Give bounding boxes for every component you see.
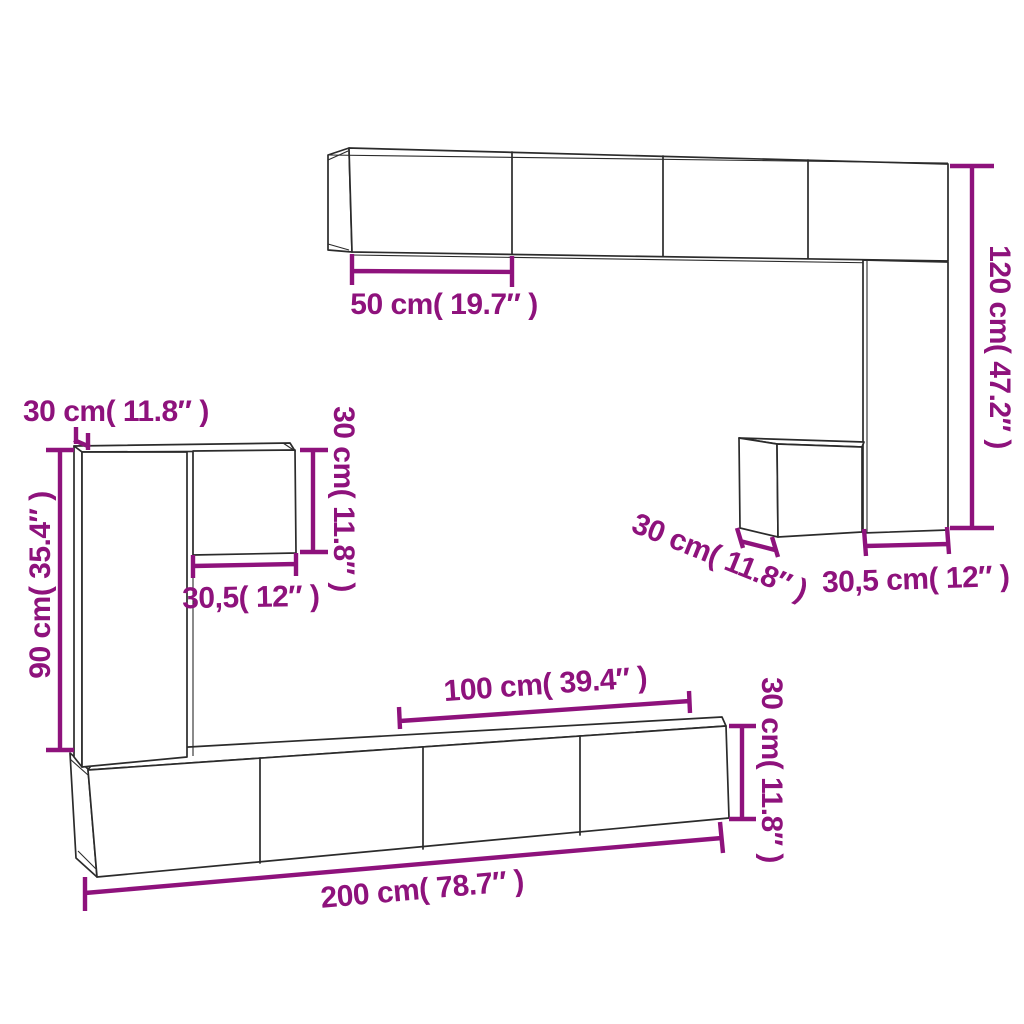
left-tall-cabinet-side-panel <box>74 446 82 767</box>
dim-left-square-width-label: 30,5( 12″ ) <box>182 580 320 615</box>
dim-right-column-height: 120 cm( 47.2″ ) <box>950 166 1016 528</box>
right-tall-cabinet-front-face <box>863 260 948 533</box>
dim-right-column-width-label: 30,5 cm( 12″ ) <box>821 560 1010 600</box>
dim-left-column-height: 90 cm( 35.4″ ) <box>24 450 74 750</box>
dim-left-square-width: 30,5( 12″ ) <box>182 553 320 615</box>
dim-bottom-cabinet-height: 30 cm( 11.8″ ) <box>729 677 788 863</box>
right-cube-cabinet <box>739 438 864 537</box>
dim-top-door-width-label: 50 cm( 19.7″ ) <box>350 288 537 321</box>
dim-right-column-height-label: 120 cm( 47.2″ ) <box>983 245 1016 449</box>
dim-top-door-width-lines <box>352 254 512 287</box>
right-cube-side-face <box>739 438 778 537</box>
dim-right-column-width: 30,5 cm( 12″ ) <box>821 527 1010 599</box>
dim-top-door-width: 50 cm( 19.7″ ) <box>350 254 537 321</box>
top-cabinet-left-end-panel <box>328 148 352 252</box>
top-cabinet-front-face <box>349 148 948 261</box>
dim-left-top-depth-label: 30 cm( 11.8″ ) <box>23 395 209 428</box>
dim-left-top-depth: 30 cm( 11.8″ ) <box>23 395 209 450</box>
left-tall-cabinet-front-face <box>82 452 187 767</box>
tv-wall-cabinet-dimension-diagram: 50 cm( 19.7″ ) 120 cm( 47.2″ ) 30 cm( 11… <box>0 0 1024 1024</box>
dim-bottom-cabinet-height-label: 30 cm( 11.8″ ) <box>755 677 788 863</box>
right-cube-front-face <box>777 444 862 537</box>
dim-bottom-section-width-label: 100 cm( 39.4″ ) <box>443 661 648 708</box>
dim-bottom-cabinet-height-lines <box>729 726 756 819</box>
left-square-cabinet-front-face <box>193 450 296 555</box>
top-wall-cabinet <box>328 148 948 264</box>
dim-bottom-section-width: 100 cm( 39.4″ ) <box>399 661 690 729</box>
dim-left-square-height: 30 cm( 11.8″ ) <box>300 406 360 592</box>
dim-left-square-height-lines <box>300 450 328 552</box>
right-tall-cabinet <box>863 260 948 533</box>
dim-left-square-width-lines <box>193 553 296 578</box>
dim-left-column-height-label: 90 cm( 35.4″ ) <box>24 491 57 678</box>
dim-left-square-height-label: 30 cm( 11.8″ ) <box>327 406 360 592</box>
